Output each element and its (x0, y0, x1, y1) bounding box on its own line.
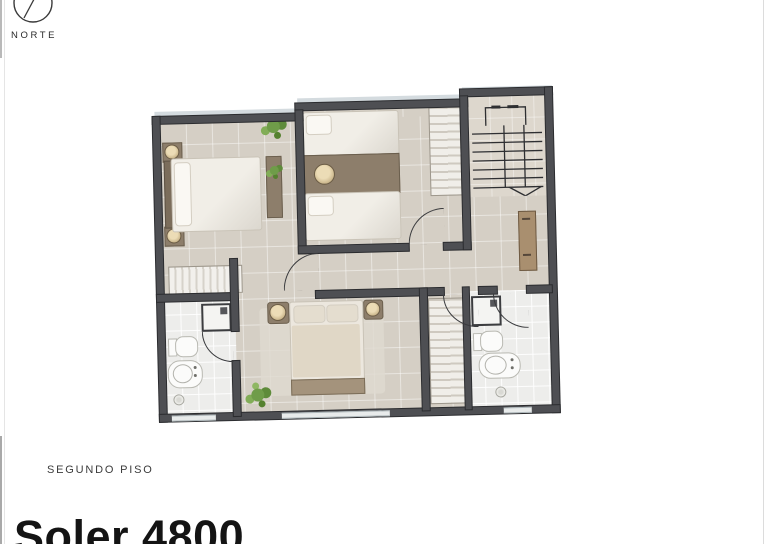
faucet-dot (194, 366, 197, 369)
floor-label: SEGUNDO PISO (47, 464, 154, 476)
bed-blanket (292, 324, 361, 378)
pillow (293, 305, 325, 324)
toilet (480, 330, 504, 352)
pillow (174, 162, 193, 226)
compass-icon (13, 0, 55, 27)
page-edge-left-dark-top (0, 0, 2, 58)
page-edge-left-dark-bottom (0, 436, 2, 544)
north-label: NORTE (11, 30, 57, 41)
bed-footer-bench (291, 378, 365, 396)
faucet-dot (511, 366, 514, 369)
toilet (175, 336, 199, 358)
window-bathroom1 (172, 414, 216, 421)
wardrobe (428, 103, 462, 196)
pillow (306, 115, 332, 136)
page-edge-right (763, 0, 764, 544)
faucet-dot (511, 358, 514, 361)
shower (201, 303, 232, 332)
window-master (282, 410, 390, 419)
stairs (467, 94, 547, 197)
plan-canvas (152, 85, 562, 429)
project-title: Soler 4800 (14, 512, 244, 544)
window-bathroom2 (504, 407, 532, 414)
pillow (326, 304, 358, 323)
wall-hall-bath2-b (527, 285, 552, 293)
pillow (307, 196, 333, 217)
wall-bathroom1-right-lower (233, 361, 241, 416)
faucet-dot (194, 374, 197, 377)
page-edge-left (4, 0, 5, 544)
cabinet-handle (522, 218, 530, 220)
floorplan-page: NORTE (0, 0, 768, 544)
cabinet-handle (523, 254, 531, 256)
